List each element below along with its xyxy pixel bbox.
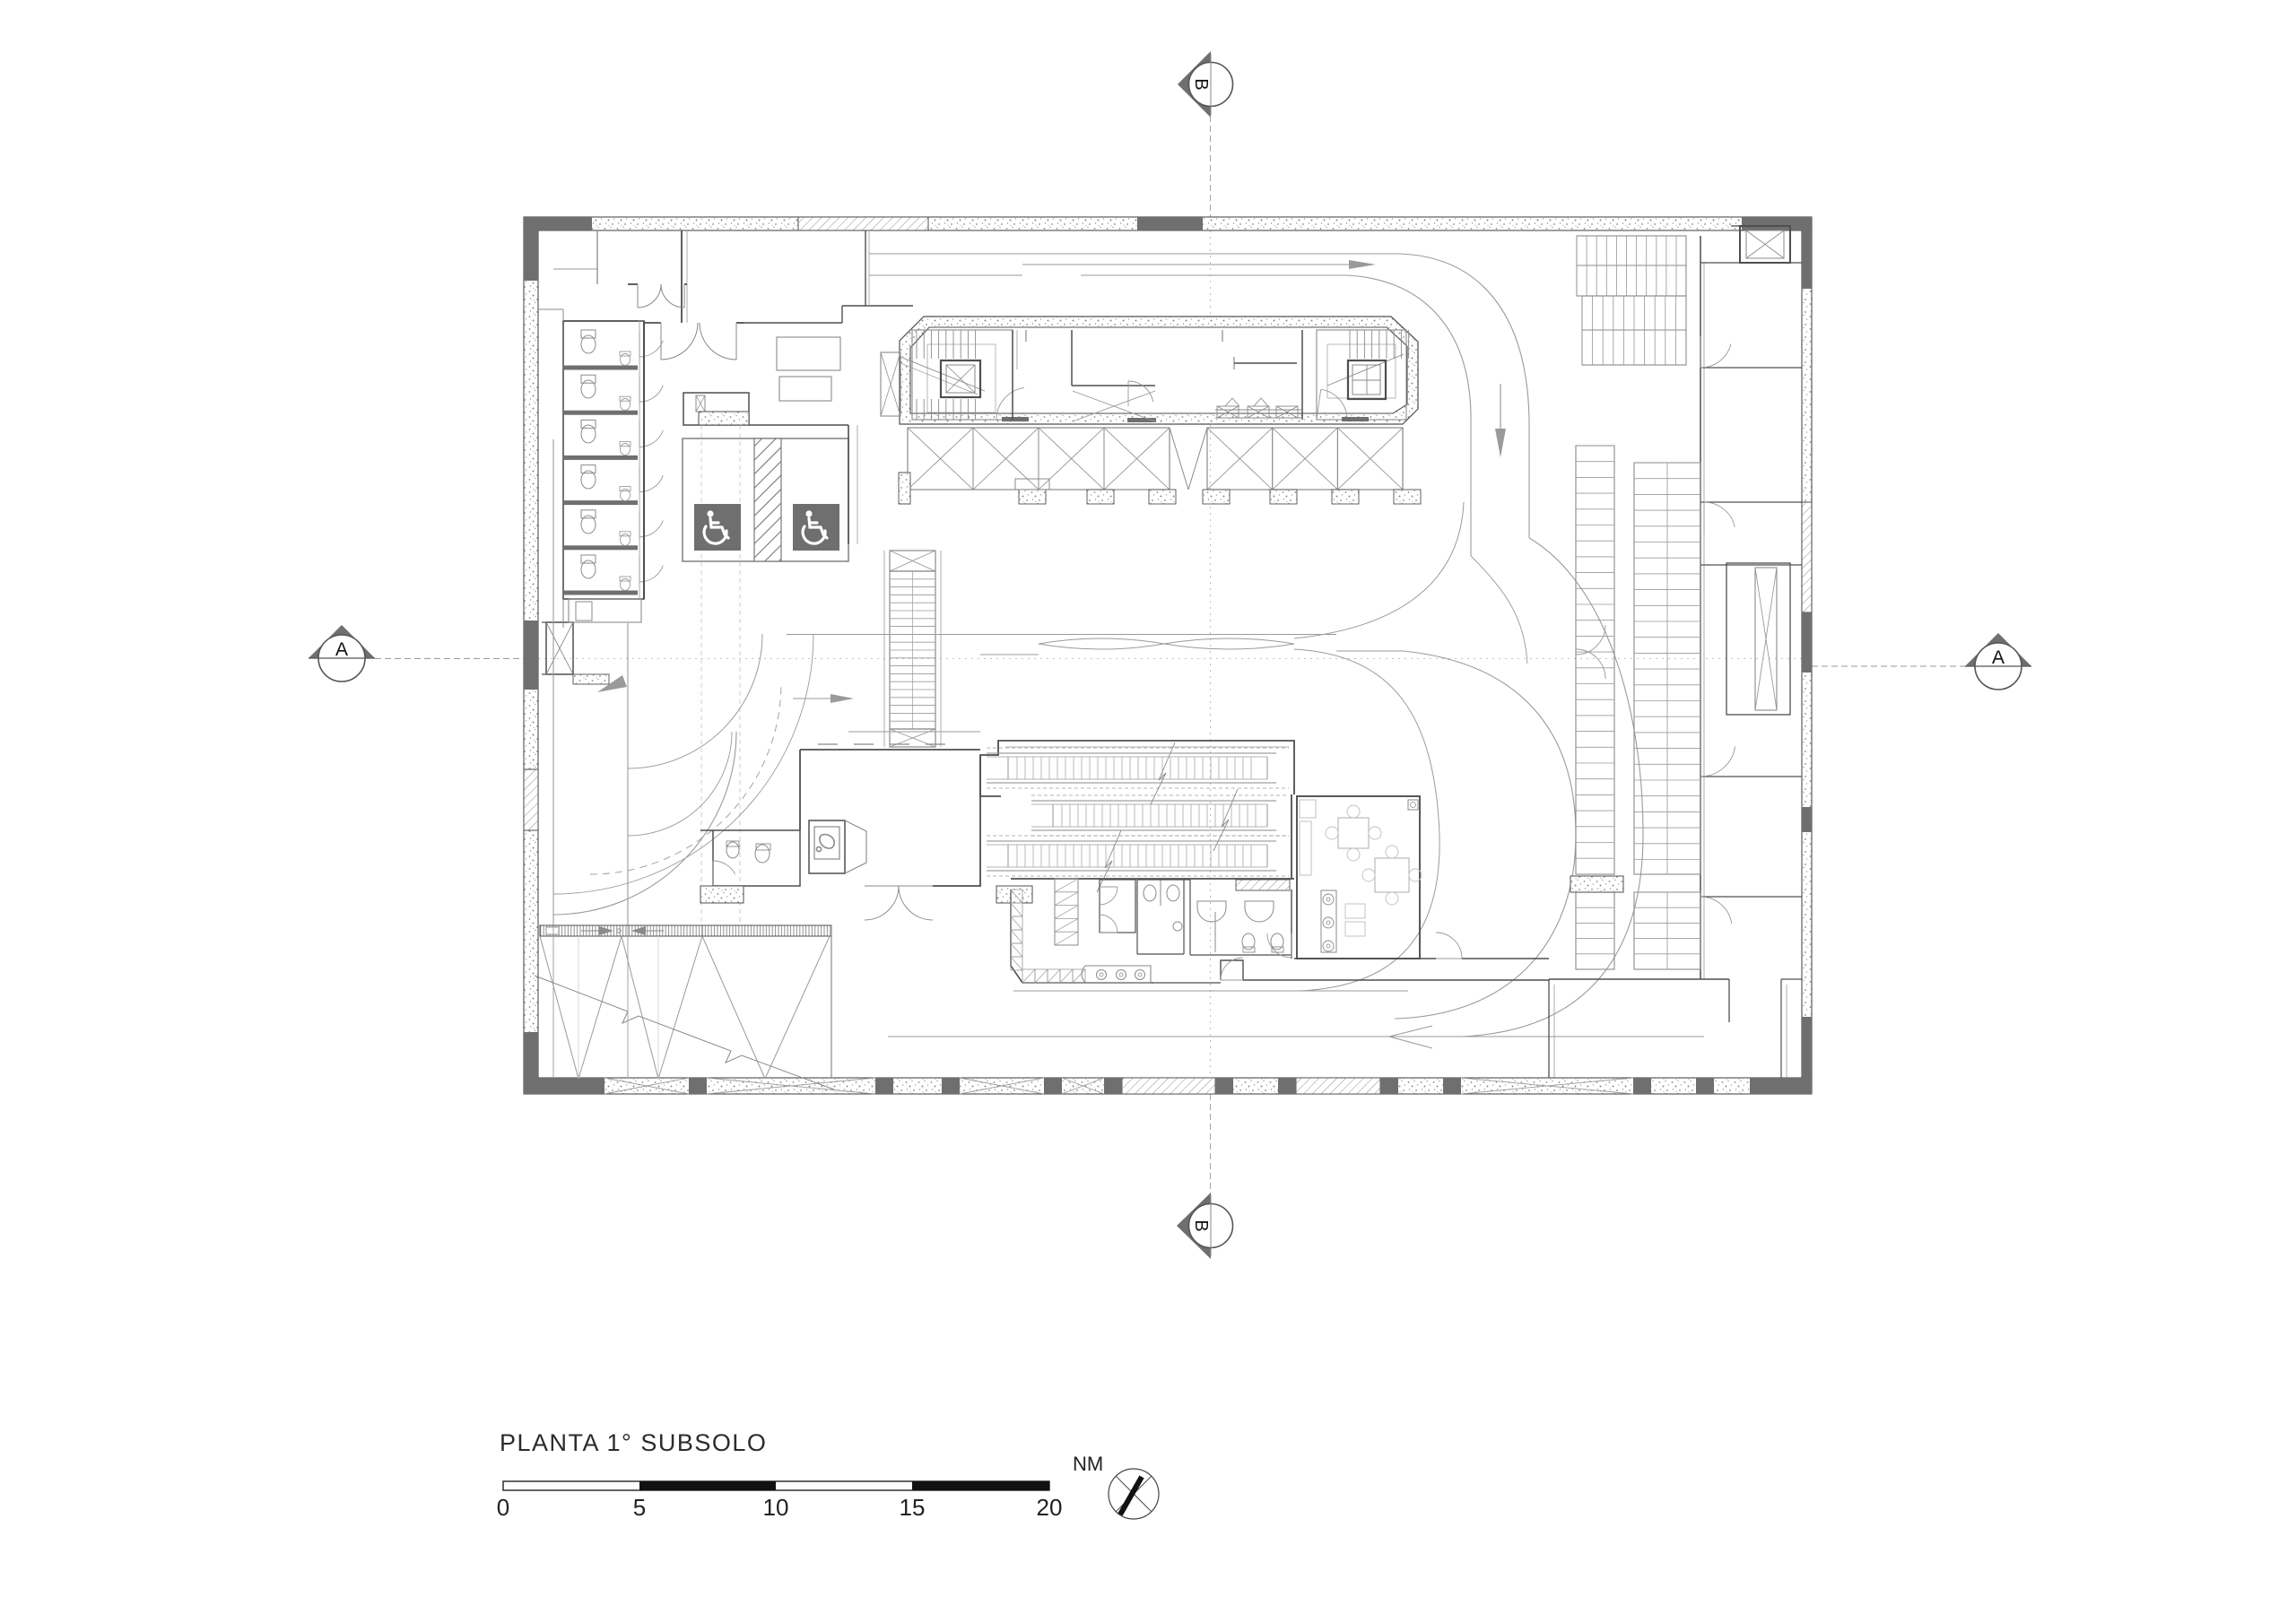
svg-text:5: 5 xyxy=(633,1494,646,1521)
svg-text:A: A xyxy=(335,639,348,660)
svg-text:B: B xyxy=(1191,1219,1211,1231)
svg-text:20: 20 xyxy=(1037,1494,1063,1521)
svg-text:15: 15 xyxy=(900,1494,926,1521)
svg-text:NM: NM xyxy=(1073,1453,1103,1475)
svg-text:B: B xyxy=(1191,78,1211,90)
svg-text:0: 0 xyxy=(497,1494,509,1521)
svg-text:PLANTA 1° SUBSOLO: PLANTA 1° SUBSOLO xyxy=(500,1429,767,1456)
svg-text:A: A xyxy=(1992,647,2005,668)
svg-text:10: 10 xyxy=(763,1494,789,1521)
